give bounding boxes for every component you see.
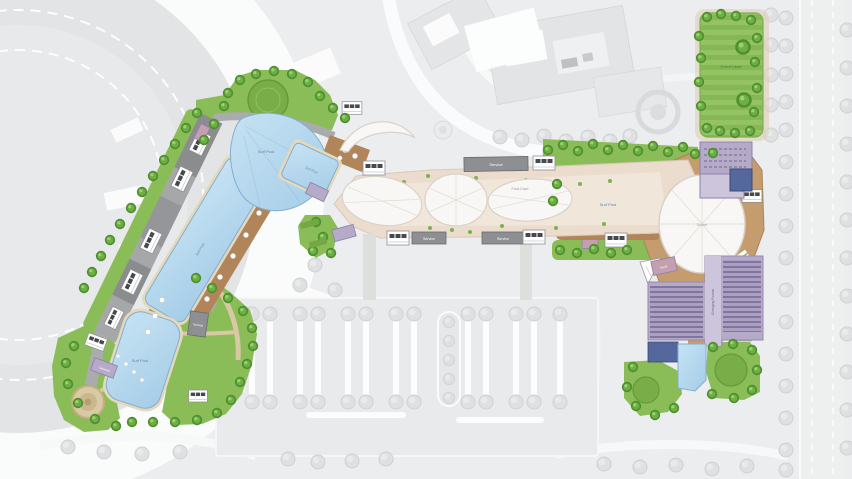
changing-rooms-label: Changing Rooms [711, 289, 715, 316]
access-road-east [800, 0, 844, 479]
kids-pool [678, 344, 706, 391]
food-court-label: Food Court [512, 187, 529, 191]
master-plan-drawing: Surf Pool Surf Pool Surf Pool Surf Pool … [0, 0, 852, 479]
service-label-sw: Service [423, 237, 435, 241]
parking-lot [216, 298, 598, 456]
plunge-pool [648, 342, 678, 362]
service-label-top: Service [489, 162, 503, 167]
site-plan-canvas: Surf Pool Surf Pool Surf Pool Surf Pool … [0, 0, 852, 479]
lower-pool-label: Surf Pool [132, 358, 149, 363]
event-lawn-label: Event Lawn [721, 64, 742, 69]
upper-changing-building [700, 142, 752, 198]
service-label-se: Service [497, 237, 509, 241]
dome-label: Dome [697, 222, 708, 227]
east-pool-label: Surf Pool [600, 202, 617, 207]
wave-pool-label: Surf Pool [258, 149, 275, 154]
event-lawn [695, 9, 769, 141]
